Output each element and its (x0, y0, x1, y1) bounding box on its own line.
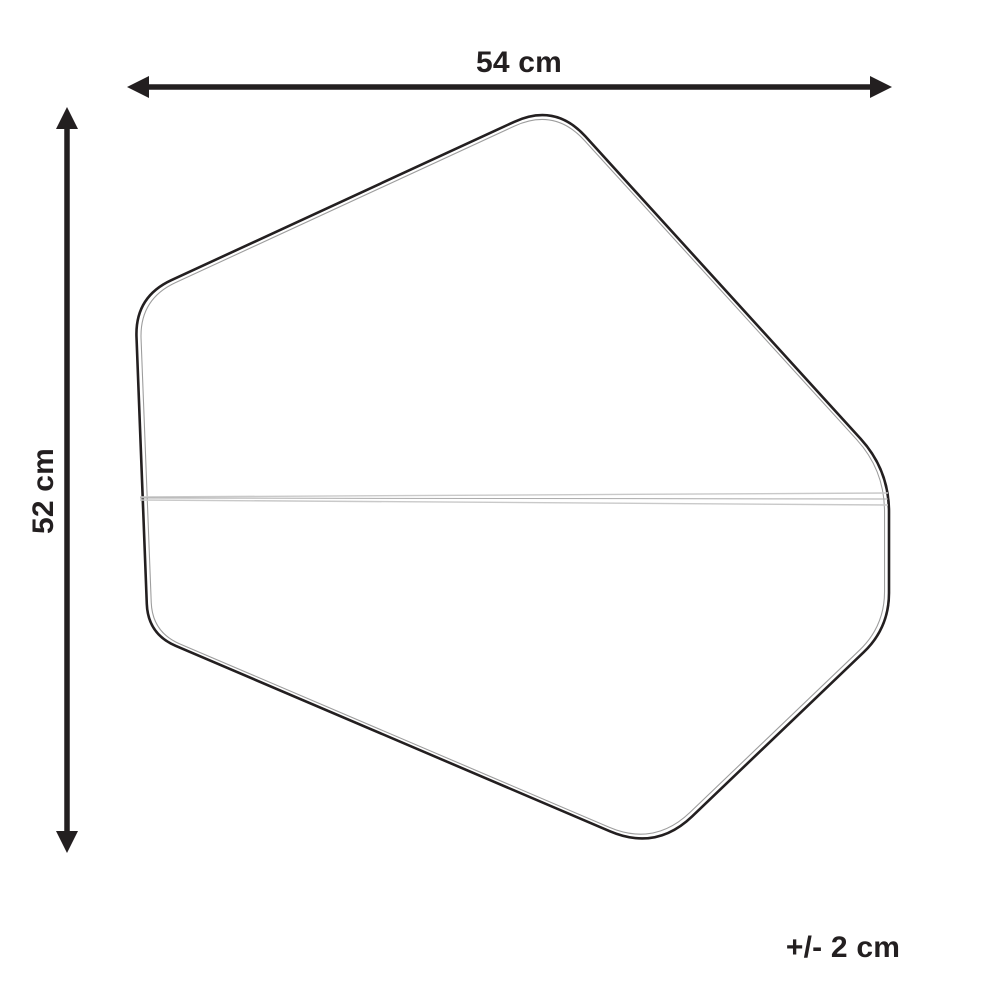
width-arrowhead-right-icon (870, 76, 892, 98)
width-dimension-label: 54 cm (476, 46, 562, 80)
seam-line-bottom (140, 500, 888, 505)
seam-line-top (140, 493, 888, 497)
height-dimension-label: 52 cm (27, 448, 61, 534)
seam-line-middle (140, 498, 888, 499)
height-arrowhead-top-icon (56, 107, 78, 129)
tolerance-label: +/- 2 cm (786, 931, 900, 965)
width-arrowhead-left-icon (127, 76, 149, 98)
diagram-drawing (0, 0, 1000, 1000)
dimension-diagram: 54 cm 52 cm +/- 2 cm (0, 0, 1000, 1000)
object-inner-outline (141, 119, 885, 834)
height-arrowhead-bottom-icon (56, 831, 78, 853)
